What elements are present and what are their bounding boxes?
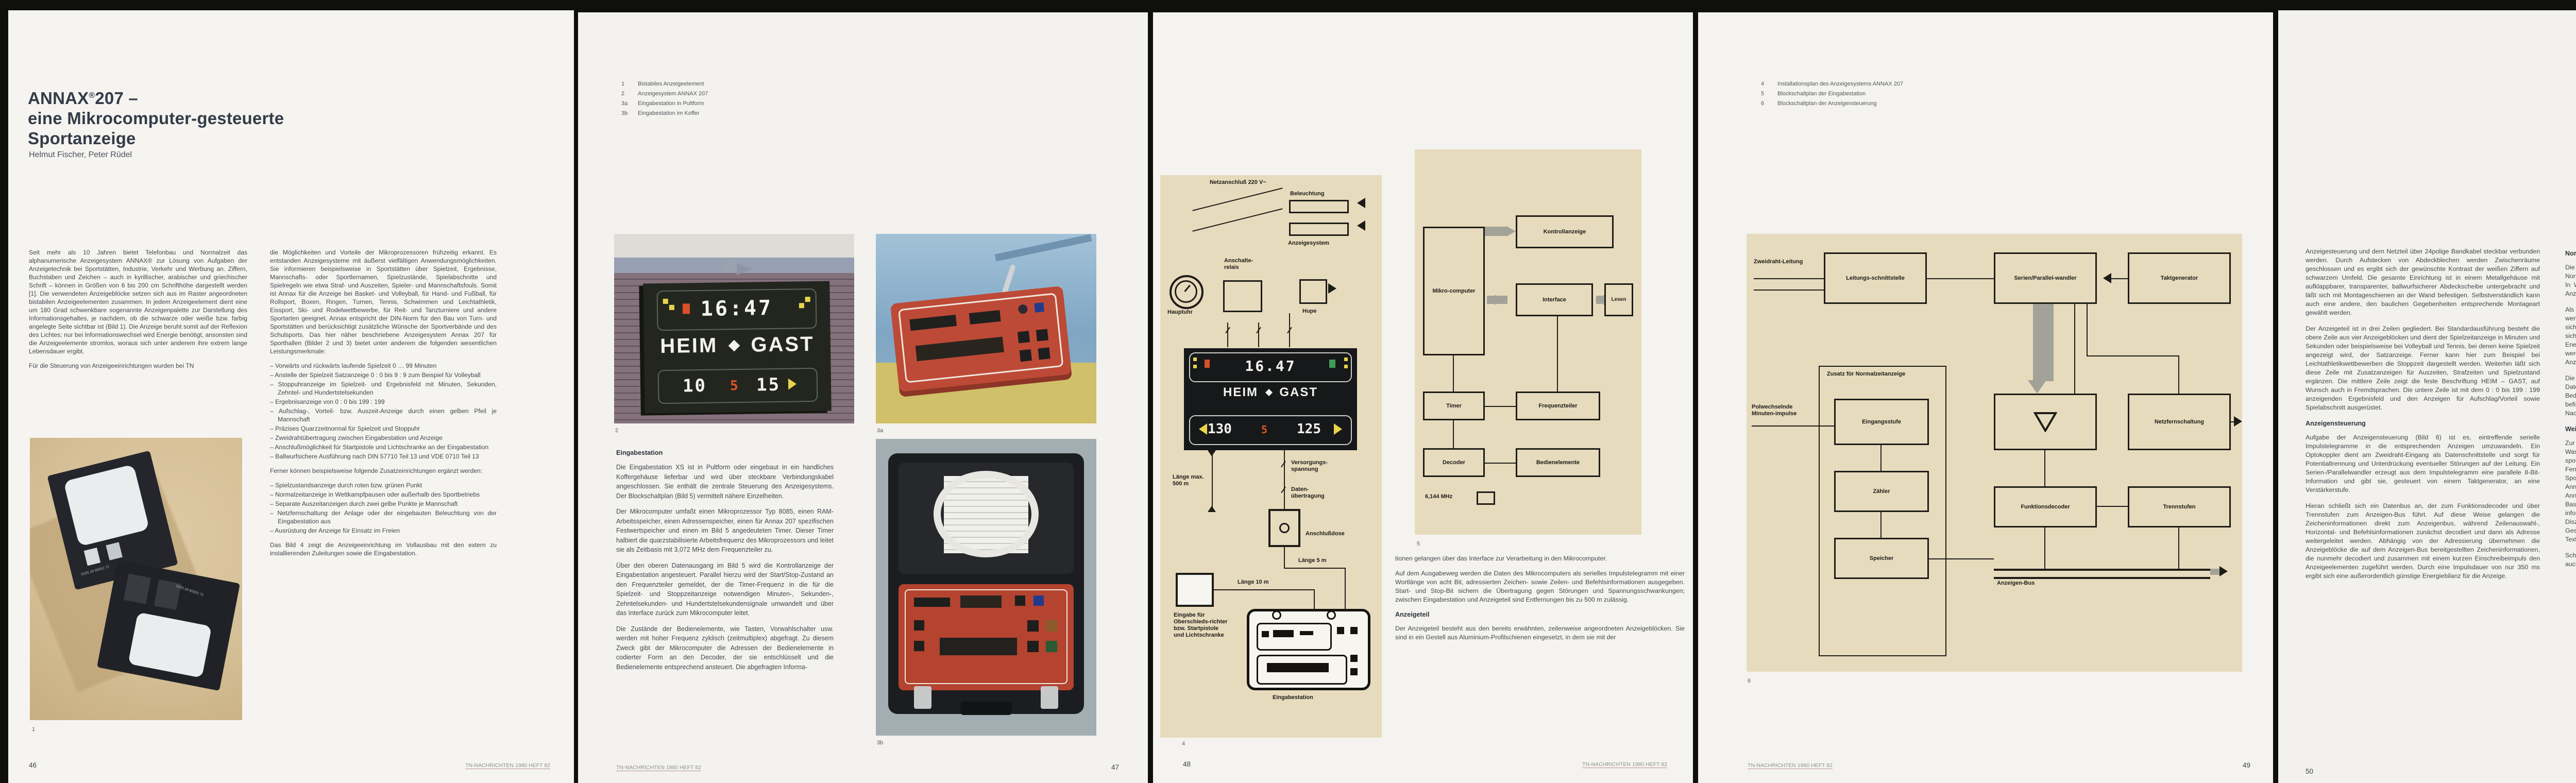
tn-diamond-icon bbox=[1265, 389, 1273, 396]
figure-6-block-diagram: Zweidraht-Leitung Leitungs-schnittstelle… bbox=[1747, 234, 2242, 672]
relay-label: Anschalte-relais bbox=[1224, 258, 1261, 271]
console bbox=[890, 286, 1072, 392]
paragraph: Schließlich sei noch erwähnt, daß die An… bbox=[2565, 551, 2576, 569]
referee-input-box bbox=[1176, 573, 1214, 607]
isolation-stages-box: Trennstufen bbox=[2128, 486, 2231, 527]
page-number: 49 bbox=[2243, 761, 2250, 769]
horn-box bbox=[1299, 279, 1327, 304]
page-46: ANNAX®207 – eine Mikrocomputer-gesteuert… bbox=[8, 10, 574, 783]
caption-line: 3aEingabestation in Pultform bbox=[621, 99, 708, 109]
paragraph: Die Eingabestation XS ist in Pultform od… bbox=[616, 463, 834, 501]
paragraph: Für die Steuerung von Anzeigeeinrichtung… bbox=[29, 362, 247, 370]
section-heading: Normalzeitanzeige bbox=[2565, 249, 2576, 258]
minute-pulse-label: Polwechselnde Minuten-impulse bbox=[1752, 404, 1808, 417]
console-panel bbox=[899, 584, 1074, 690]
journal-footer: TN-NACHRICHTEN 1980 HEFT 82 bbox=[1748, 762, 1833, 769]
function-decoder-box: Funktionsdecoder bbox=[1994, 486, 2097, 527]
display-system-label: Anzeigesystem bbox=[1288, 240, 1329, 247]
supply-label: Versorgungs-spannung bbox=[1291, 459, 1338, 473]
loudspeaker-horn bbox=[737, 263, 758, 275]
extra-item: – Spielzustandsanzeige durch roten bzw. … bbox=[270, 481, 497, 489]
feature-item: – Präzises Quarzzeitnormal für Spielzeit… bbox=[270, 424, 497, 433]
figure-captions: 4Installationsplan des Anzeigesystems AN… bbox=[1761, 79, 1903, 109]
memory-box: Speicher bbox=[1834, 538, 1929, 579]
lighting-label: Beleuchtung bbox=[1290, 191, 1325, 197]
paragraph: Der Mikrocomputer umfaßt einen Mikroproz… bbox=[616, 507, 834, 555]
team-row: HEIM GAST bbox=[644, 332, 831, 358]
display-bus-label: Anzeigen-Bus bbox=[1997, 580, 2035, 587]
extra-item: – Separate Auszeitanzeigen durch zwei ge… bbox=[270, 500, 497, 508]
length-500-label: Länge max. 500 m bbox=[1173, 474, 1209, 487]
display-element-2: 0165.18 90052 72 bbox=[97, 560, 240, 691]
display-flap-white bbox=[63, 464, 149, 547]
scoreboard-drawing: 16.47 HEIM GAST 130 5 125 bbox=[1184, 348, 1357, 450]
serial-parallel-box: Serien/Parallel-wandler bbox=[1994, 252, 2097, 304]
board-score-home: 130 bbox=[1208, 421, 1232, 437]
junction-box bbox=[1268, 509, 1300, 547]
paragraph: Zur Baureihe des Anzeigesystems Annax 20… bbox=[2565, 439, 2576, 544]
article-title: ANNAX®207 – eine Mikrocomputer-gesteuert… bbox=[28, 86, 284, 148]
column-right: die Möglichkeiten und Vorteile der Mikro… bbox=[270, 248, 497, 564]
figure-2-caption: 2 bbox=[615, 428, 618, 434]
column-right: tionen gelangen über das Interface zur V… bbox=[1395, 554, 1685, 648]
cable-coil bbox=[934, 471, 1039, 557]
home-label: HEIM bbox=[660, 334, 718, 358]
feature-item: – Ergebnisanzeige von 0 : 0 bis 199 : 19… bbox=[270, 398, 497, 406]
feature-item: – Ballwurfsichere Ausführung nach DIN 57… bbox=[270, 452, 497, 461]
caption-line: 1Bistabiles Anzeigeelement bbox=[621, 79, 708, 89]
section-heading: Weitere TN-Anzeigesysteme bbox=[2565, 425, 2576, 434]
feature-item: – Vorwärts und rückwärts laufende Spielz… bbox=[270, 362, 497, 370]
display-flap-white bbox=[128, 612, 212, 678]
paragraph: Das Bild 4 zeigt die Anzeigeeinrichtung … bbox=[270, 541, 497, 557]
authors: Helmut Fischer, Peter Rüdel bbox=[29, 150, 132, 160]
lighting-box bbox=[1289, 200, 1349, 213]
guest-score: 15 bbox=[756, 375, 781, 396]
relay-box bbox=[1223, 280, 1262, 312]
clock-panel: 16:47 bbox=[656, 288, 817, 331]
loudspeaker-icon bbox=[721, 259, 739, 272]
latch-right bbox=[1041, 686, 1058, 709]
feature-item: – Aufschlag-, Vorteil- bzw. Auszeit-Anze… bbox=[270, 407, 497, 423]
figure-6-caption: 6 bbox=[1748, 678, 1751, 684]
figure-3a-caption: 3a bbox=[877, 428, 883, 434]
horn-icon bbox=[1328, 283, 1342, 294]
figure-1-caption: 1 bbox=[32, 726, 35, 733]
caption-line: 3bEingabestation im Koffer bbox=[621, 109, 708, 118]
paragraph: Aufgabe der Anzeigensteuerung (Bild 6) i… bbox=[2306, 433, 2540, 495]
paragraph: Auf dem Ausgabeweg werden die Daten des … bbox=[1395, 569, 1685, 604]
control-display-box: Kontrollanzeige bbox=[1516, 215, 1614, 248]
figure-4-caption: 4 bbox=[1182, 741, 1185, 747]
timer-box: Timer bbox=[1423, 391, 1485, 420]
figure-3a-photo bbox=[876, 234, 1096, 423]
scanned-journal-spread: ANNAX®207 – eine Mikrocomputer-gesteuert… bbox=[0, 0, 2576, 783]
page-number: 47 bbox=[1111, 763, 1119, 771]
master-clock-icon bbox=[1170, 275, 1204, 309]
section-heading: Eingabestation bbox=[616, 449, 663, 456]
amplifier-box bbox=[1994, 394, 2097, 450]
section-heading: Anzeigeteil bbox=[1395, 610, 1685, 619]
section-heading: Anzeigensteuerung bbox=[2306, 419, 2540, 428]
paragraph: Über den oberen Datenausgang im Bild 5 w… bbox=[616, 561, 834, 618]
case bbox=[888, 453, 1084, 714]
decoder-box: Decoder bbox=[1423, 448, 1485, 477]
extra-item: – Normalzeitanzeige in Wettkampfpausen o… bbox=[270, 490, 497, 499]
serve-arrow-icon bbox=[788, 378, 802, 389]
length-10-label: Länge 10 m bbox=[1238, 579, 1269, 586]
set-digit: 5 bbox=[730, 378, 738, 394]
horn-label: Hupe bbox=[1302, 308, 1317, 315]
display-supply-box bbox=[1289, 223, 1349, 236]
journal-footer: TN-NACHRICHTEN 1980 HEFT 82 bbox=[465, 762, 550, 769]
length-5-label: Länge 5 m bbox=[1298, 557, 1326, 564]
figure-5-block-diagram: Mikro-computer Kontrollanzeige Interface… bbox=[1415, 149, 1641, 535]
remote-switching-box: Netzfernschaltung bbox=[2128, 394, 2231, 450]
feature-item: – Stoppuhranzeige im Spielzeit- und Erge… bbox=[270, 380, 497, 397]
guest-label: GAST bbox=[751, 333, 815, 356]
extras-list: – Spielzustandsanzeige durch roten bzw. … bbox=[270, 481, 497, 535]
controls-box: Bedienelemente bbox=[1516, 448, 1600, 477]
page-number: 48 bbox=[1183, 760, 1191, 768]
extra-item: – Ausrüstung der Anzeige für Einsatz im … bbox=[270, 526, 497, 535]
paragraph: Seit mehr als 10 Jahren bietet Telefonba… bbox=[29, 248, 247, 355]
page-number: 46 bbox=[29, 761, 37, 769]
clock-generator-box: Taktgenerator bbox=[2128, 252, 2231, 304]
quartz-icon bbox=[1477, 491, 1495, 505]
element-label: 0165.18 90052 72 bbox=[175, 584, 221, 603]
board-score-guest: 125 bbox=[1297, 421, 1321, 437]
figure-4-installation-plan: Netzanschluß 220 V~ Beleuchtung Anzeiges… bbox=[1160, 175, 1382, 738]
caption-line: 4Installationsplan des Anzeigesystems AN… bbox=[1761, 79, 1903, 89]
junction-label: Anschlußdose bbox=[1306, 531, 1345, 537]
input-station-drawing bbox=[1247, 609, 1370, 690]
latch-left bbox=[914, 686, 931, 709]
read-box: Lesen bbox=[1604, 283, 1633, 316]
column-left: Anzeigesteuerung und dem Netzteil über 2… bbox=[2306, 247, 2540, 588]
paragraph: Ferner können beispielsweise folgende Zu… bbox=[270, 467, 497, 475]
paragraph: Anzeigesteuerung und dem Netzteil über 2… bbox=[2306, 247, 2540, 317]
feature-item: – Anschlußmöglichkeit für Startpistole u… bbox=[270, 443, 497, 451]
feature-list: – Vorwärts und rückwärts laufende Spielz… bbox=[270, 362, 497, 461]
time-addon-label: Zusatz für Normalzeitanzeige bbox=[1827, 371, 1935, 378]
figure-1-photo: 0165.18 90052 72 0165.18 90052 72 bbox=[30, 438, 242, 720]
paragraph: Der Anzeigeteil besteht aus den bereits … bbox=[1395, 624, 1685, 642]
figure-5-caption: 5 bbox=[1417, 541, 1420, 547]
journal-footer: TN-NACHRICHTEN 1980 HEFT 82 bbox=[1582, 761, 1667, 768]
board-clock: 16.47 bbox=[1190, 358, 1351, 375]
page-number: 50 bbox=[2306, 768, 2313, 775]
counter-box: Zähler bbox=[1834, 471, 1929, 512]
paragraph: die Möglichkeiten und Vorteile der Mikro… bbox=[270, 248, 497, 355]
feature-item: – Zweidrahtübertragung zwischen Eingabes… bbox=[270, 434, 497, 442]
master-clock-label: Hauptuhr bbox=[1167, 309, 1193, 316]
home-score: 10 bbox=[683, 376, 707, 397]
line-interface-box: Leitungs-schnittstelle bbox=[1824, 252, 1927, 304]
feature-item: – Anstelle der Spielzeit Satzanzeige 0 :… bbox=[270, 371, 497, 379]
tn-diamond-icon bbox=[728, 340, 740, 352]
input-stage-box: Eingangsstufe bbox=[1834, 399, 1929, 445]
clock-display: 16:47 bbox=[658, 296, 816, 321]
quartz-label: 6,144 MHz bbox=[1425, 493, 1452, 500]
column-left: Seit mehr als 10 Jahren bietet Telefonba… bbox=[29, 248, 247, 376]
page-47: 1Bistabiles Anzeigeelement2Anzeigesystem… bbox=[578, 12, 1148, 783]
column-left: Die Eingabestation XS ist in Pultform od… bbox=[616, 463, 834, 678]
board-set: 5 bbox=[1261, 423, 1267, 436]
caption-line: 2Anzeigesystem ANNAX 207 bbox=[621, 89, 708, 99]
frequency-divider-box: Frequenzteiler bbox=[1516, 391, 1600, 420]
handle bbox=[960, 702, 1012, 715]
microcomputer-box: Mikro-computer bbox=[1423, 227, 1485, 355]
board-team-row: HEIM GAST bbox=[1184, 385, 1357, 400]
figure-captions: 1Bistabiles Anzeigeelement2Anzeigesystem… bbox=[621, 79, 708, 118]
score-panel: 10 5 15 bbox=[658, 368, 818, 404]
paragraph: Die Anzeigensteuerung kann bei Bedarf mi… bbox=[2565, 263, 2576, 298]
input-station-label: Eingabestation bbox=[1273, 694, 1313, 701]
paragraph: Hieran schließt sich ein Datenbus an, de… bbox=[2306, 502, 2540, 581]
page-48: Netzanschluß 220 V~ Beleuchtung Anzeiges… bbox=[1153, 12, 1693, 783]
amplifier-icon bbox=[2033, 412, 2057, 432]
page-50: Anzeigesteuerung und dem Netzteil über 2… bbox=[2278, 10, 2576, 783]
caption-line: 5Blockschaltplan der Eingabestation bbox=[1761, 89, 1903, 99]
paragraph: tionen gelangen über das Interface zur V… bbox=[1395, 554, 1685, 563]
paragraph: Als Eingangssignal sind polwechselnde Mi… bbox=[2565, 305, 2576, 367]
caption-line: 6Blockschaltplan der Anzeigensteuerung bbox=[1761, 99, 1903, 109]
board-guest: GAST bbox=[1279, 385, 1318, 399]
figure-2-photo: 16:47 HEIM GAST 10 5 15 bbox=[614, 234, 854, 423]
paragraph: Die Steuerinformationen gelangen über Tr… bbox=[2565, 374, 2576, 418]
page-49: 4Installationsplan des Anzeigesystems AN… bbox=[1698, 12, 2273, 783]
paragraph: Der Anzeigeteil ist in drei Zeilen gegli… bbox=[2306, 325, 2540, 412]
column-right: Normalzeitanzeige Die Anzeigensteuerung … bbox=[2565, 247, 2576, 576]
mains-label: Netzanschluß 220 V~ bbox=[1210, 179, 1266, 186]
figure-3b-photo bbox=[876, 439, 1096, 736]
referee-input-label: Eingabe für Oberschieds-richter bzw. Sta… bbox=[1174, 612, 1230, 639]
figure-3b-caption: 3b bbox=[877, 740, 883, 746]
board-home: HEIM bbox=[1223, 385, 1258, 399]
interface-box: Interface bbox=[1516, 283, 1593, 316]
data-label: Daten-übertragung bbox=[1291, 486, 1338, 500]
paragraph: Die Zustände der Bedienelemente, wie Tas… bbox=[616, 624, 834, 672]
journal-footer: TN-NACHRICHTEN 1980 HEFT 82 bbox=[616, 764, 701, 771]
extra-item: – Netzfernschaltung der Anlage oder der … bbox=[270, 509, 497, 525]
two-wire-label: Zweidraht-Leitung bbox=[1754, 259, 1803, 265]
scoreboard: 16:47 HEIM GAST 10 5 15 bbox=[643, 281, 831, 413]
